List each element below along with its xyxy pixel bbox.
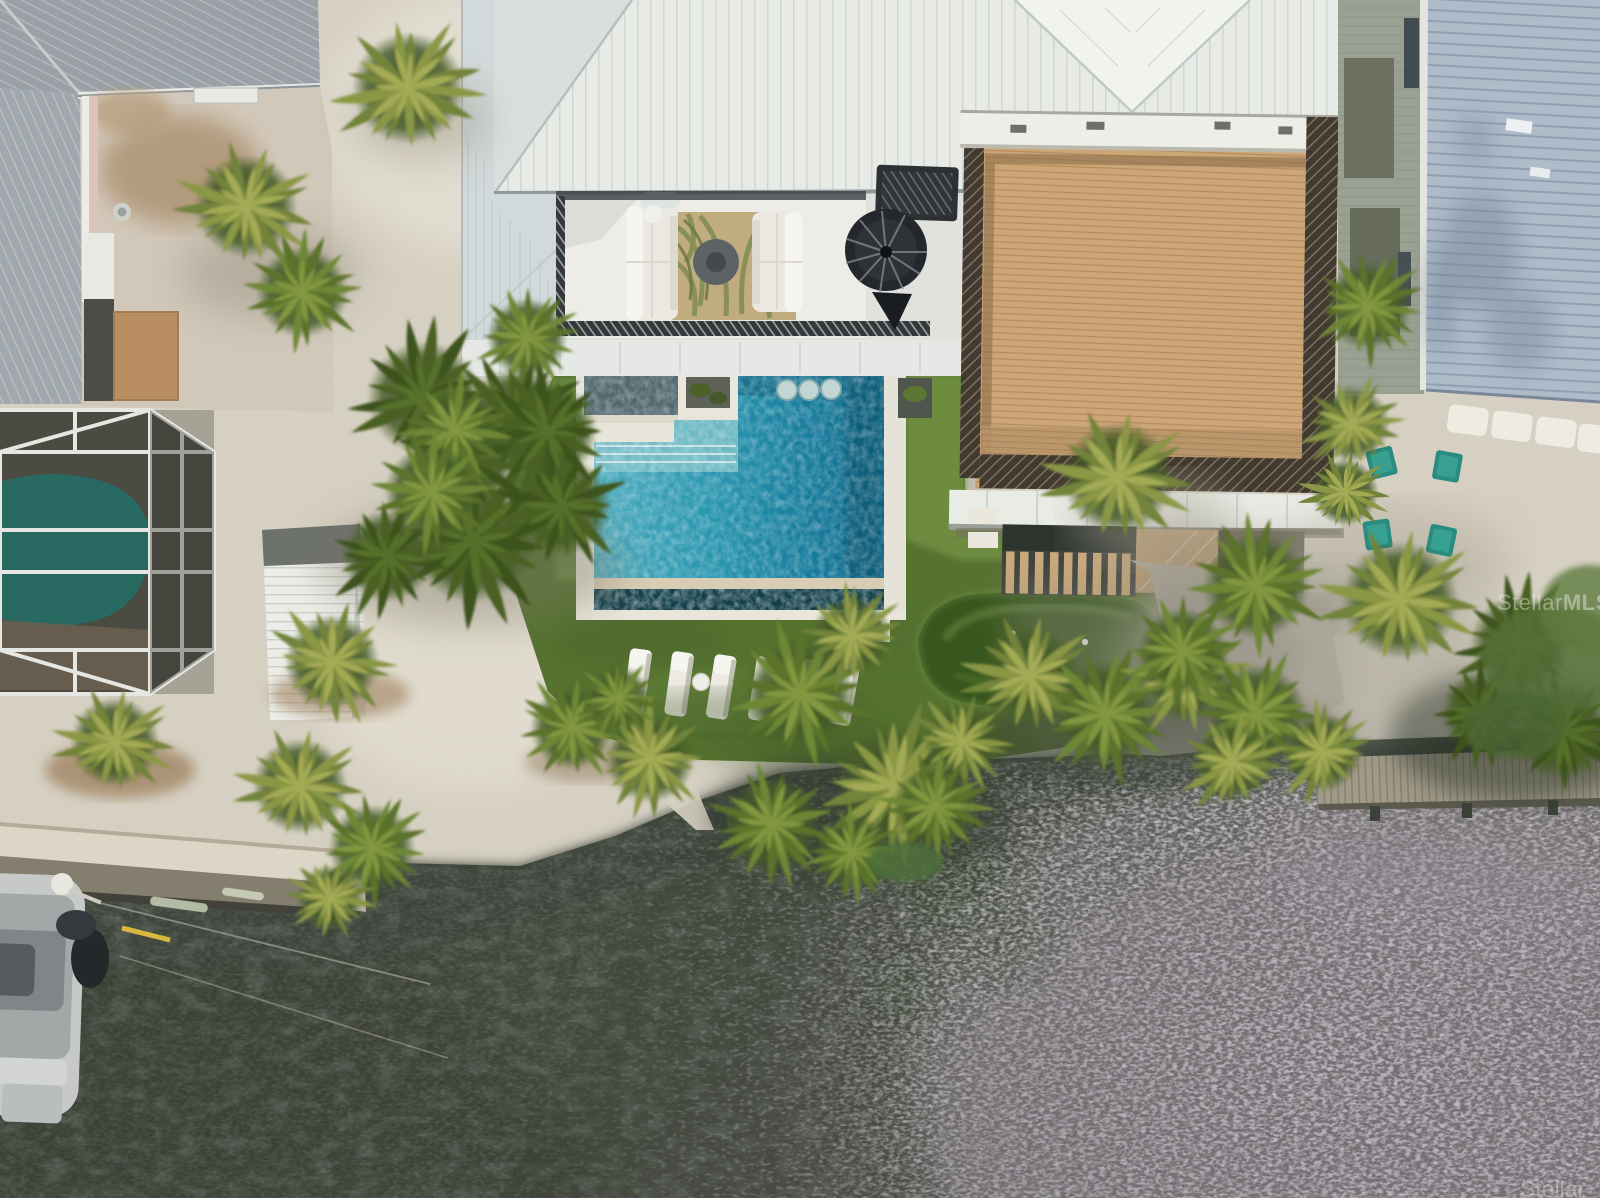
svg-text:StellarMLS: StellarMLS — [1497, 590, 1600, 615]
svg-text:Stellar: Stellar — [1520, 1176, 1586, 1198]
